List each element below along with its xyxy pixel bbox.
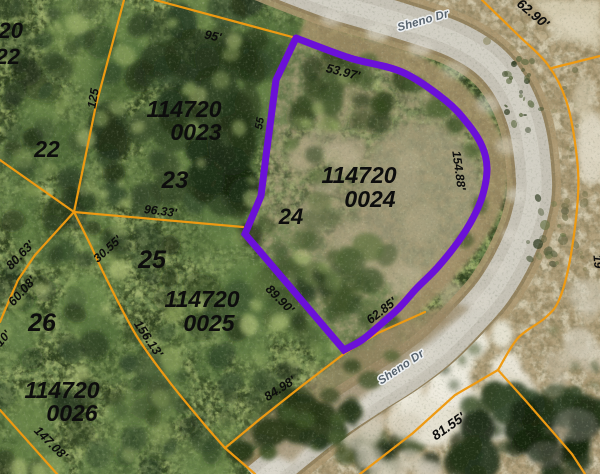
svg-text:114720: 114720 bbox=[321, 162, 396, 188]
svg-text:0023: 0023 bbox=[170, 119, 221, 145]
svg-text:26: 26 bbox=[27, 309, 57, 337]
svg-text:114720: 114720 bbox=[164, 286, 239, 312]
svg-text:22: 22 bbox=[0, 44, 21, 69]
svg-text:24: 24 bbox=[278, 204, 303, 229]
svg-text:25: 25 bbox=[137, 246, 167, 274]
svg-text:0026: 0026 bbox=[46, 400, 97, 426]
svg-text:22: 22 bbox=[33, 136, 60, 162]
svg-text:23: 23 bbox=[161, 167, 189, 194]
svg-text:20: 20 bbox=[0, 18, 24, 43]
svg-text:19: 19 bbox=[590, 254, 600, 269]
svg-text:0025: 0025 bbox=[183, 310, 235, 336]
svg-text:0024: 0024 bbox=[344, 186, 395, 212]
